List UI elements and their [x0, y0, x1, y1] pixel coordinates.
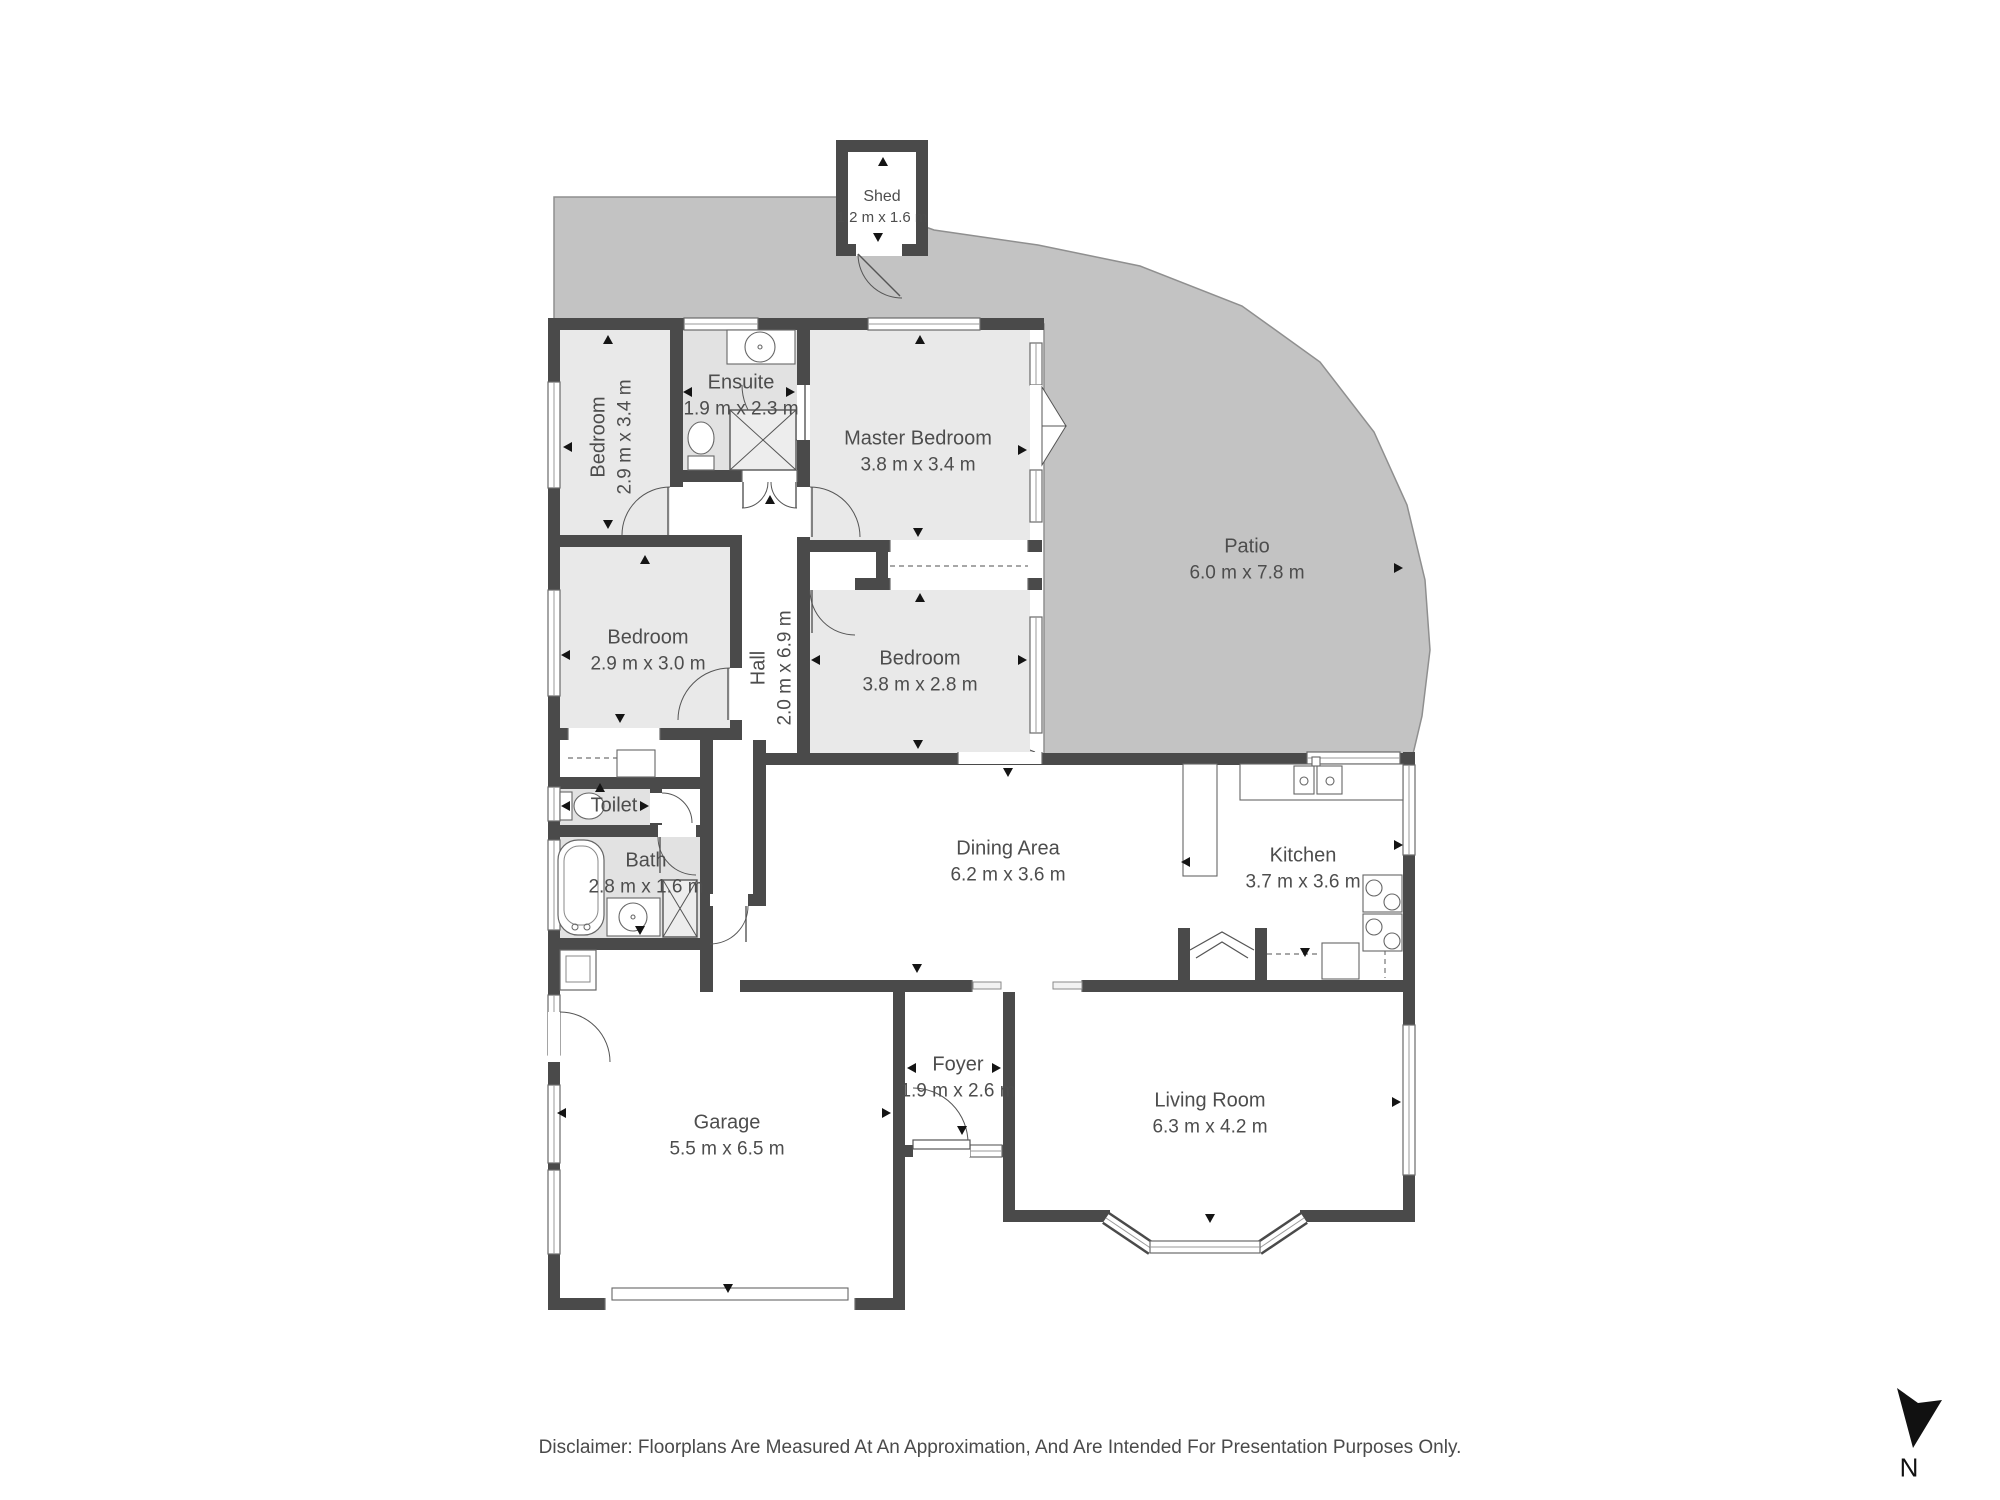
shed-structure [836, 140, 928, 256]
north-arrow-icon [1897, 1388, 1942, 1448]
floorplan-canvas [0, 0, 2000, 1500]
north-compass-label: N [1900, 1453, 1919, 1484]
disclaimer-text: Disclaimer: Floorplans Are Measured At A… [539, 1437, 1462, 1459]
fireplace [1178, 928, 1267, 992]
floorplan-page: Shed1.2 m x 1.6 mBedroom2.9 m x 3.4 mEns… [0, 0, 2000, 1500]
